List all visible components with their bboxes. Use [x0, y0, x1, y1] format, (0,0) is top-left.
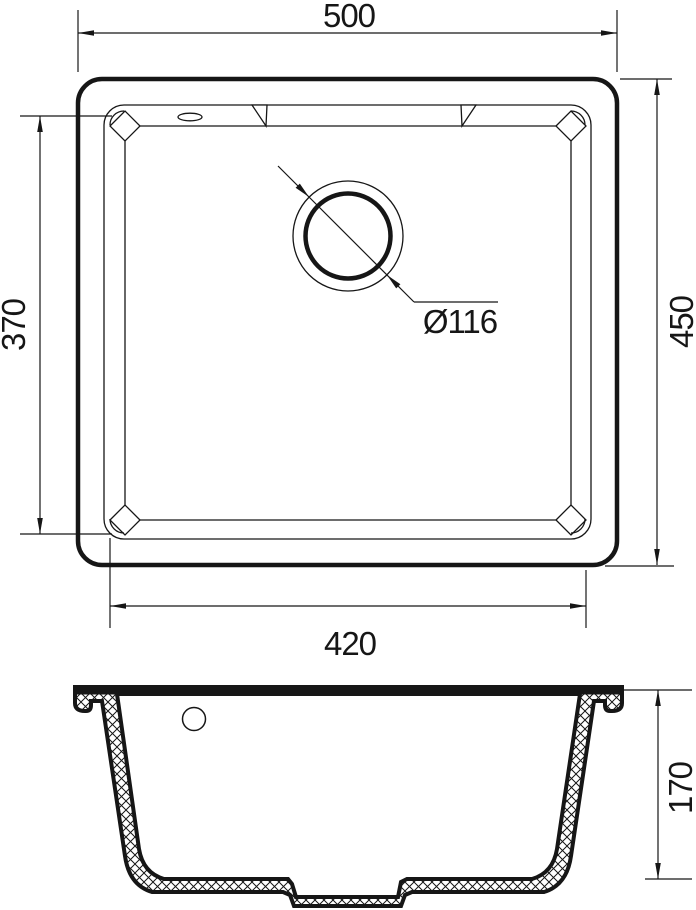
- dim-label-500: 500: [323, 0, 376, 34]
- dim-label-420: 420: [324, 625, 377, 662]
- technical-drawing-sheet: 500 450 370 420 Ø116: [0, 0, 696, 910]
- dim-label-450: 450: [663, 295, 696, 348]
- section-overflow-hole: [183, 708, 206, 731]
- dim-label-170: 170: [662, 761, 696, 814]
- dim-label-370: 370: [0, 298, 32, 351]
- dim-label-drain-diameter: Ø116: [423, 303, 497, 340]
- sink-dimension-drawing: 500 450 370 420 Ø116: [0, 0, 696, 910]
